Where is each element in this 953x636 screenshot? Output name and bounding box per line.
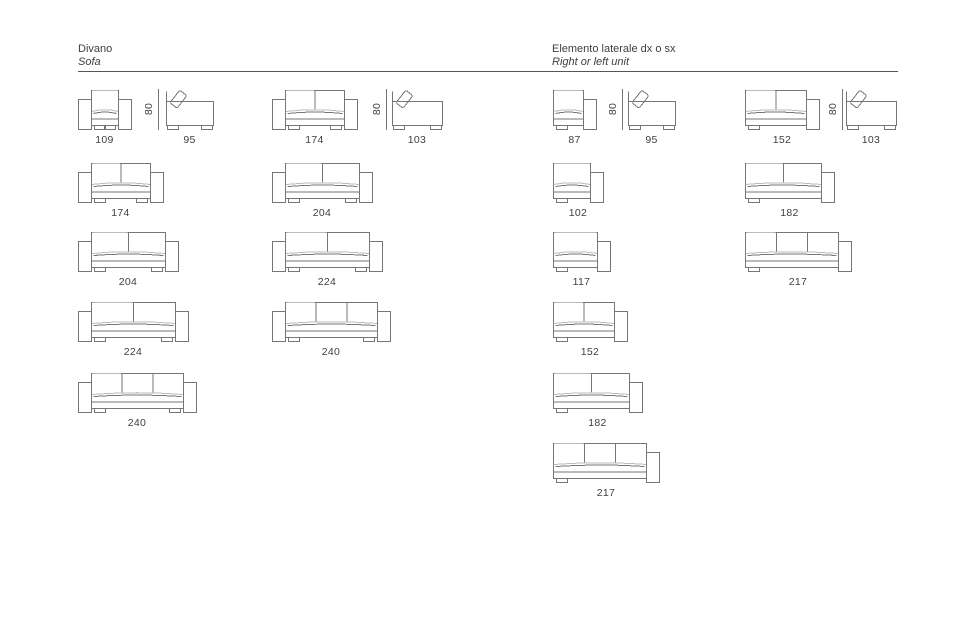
size-label: 240 <box>78 417 196 429</box>
sofa-front-view-240 <box>78 373 198 414</box>
section-subtitle: Right or left unit <box>552 56 676 69</box>
lateral-front-view-102 <box>553 163 605 204</box>
size-label: 152 <box>745 134 819 146</box>
section-subtitle: Sofa <box>78 56 112 69</box>
size-label: 102 <box>553 207 603 219</box>
lateral-front-view-217 <box>745 232 853 273</box>
header-rule <box>78 71 898 72</box>
section-header-sofa: Divano Sofa <box>78 43 112 69</box>
height-dim-label: 80 <box>827 96 839 122</box>
height-dim-label: 80 <box>607 96 619 122</box>
lateral-front-view-87 <box>553 90 598 131</box>
size-label: 117 <box>553 276 610 288</box>
size-label: 182 <box>745 207 834 219</box>
section-title: Divano <box>78 43 112 56</box>
lateral-front-view-152 <box>553 302 629 343</box>
size-label: 174 <box>78 207 163 219</box>
height-dim-line <box>622 89 623 130</box>
height-dim-line <box>386 89 387 130</box>
sofa-front-view-174 <box>272 90 359 131</box>
sofa-front-view-224 <box>78 302 190 343</box>
lateral-front-view-182 <box>745 163 836 204</box>
lateral-front-view-182 <box>553 373 644 414</box>
sofa-front-view-204 <box>272 163 374 204</box>
size-label: 224 <box>272 276 382 288</box>
height-dim-label: 80 <box>371 96 383 122</box>
size-label: 204 <box>78 276 178 288</box>
size-label: 109 <box>78 134 131 146</box>
size-label: 224 <box>78 346 188 358</box>
sofa-front-view-109 <box>78 90 133 131</box>
height-dim-line <box>842 89 843 130</box>
height-dim-label: 80 <box>143 96 155 122</box>
size-label: 217 <box>745 276 851 288</box>
size-label: 103 <box>392 134 442 146</box>
sofa-front-view-174 <box>78 163 165 204</box>
size-label: 204 <box>272 207 372 219</box>
sofa-front-view-240 <box>272 302 392 343</box>
size-label: 152 <box>553 346 627 358</box>
section-title: Elemento laterale dx o sx <box>552 43 676 56</box>
size-label: 174 <box>272 134 357 146</box>
lateral-front-view-117 <box>553 232 612 273</box>
size-label: 87 <box>553 134 596 146</box>
size-label: 103 <box>846 134 896 146</box>
size-label: 182 <box>553 417 642 429</box>
size-label: 217 <box>553 487 659 499</box>
sofa-front-view-204 <box>78 232 180 273</box>
size-label: 95 <box>166 134 213 146</box>
sofa-front-view-224 <box>272 232 384 273</box>
size-label: 240 <box>272 346 390 358</box>
lateral-front-view-217 <box>553 443 661 484</box>
lateral-side-view-95 <box>628 90 677 131</box>
height-dim-line <box>158 89 159 130</box>
size-label: 95 <box>628 134 675 146</box>
sofa-side-view-103 <box>392 90 444 131</box>
section-header-lateral-unit: Elemento laterale dx o sx Right or left … <box>552 43 676 69</box>
sofa-side-view-95 <box>166 90 215 131</box>
lateral-front-view-152 <box>745 90 821 131</box>
lateral-side-view-103 <box>846 90 898 131</box>
catalog-dimension-sheet: Divano Sofa Elemento laterale dx o sx Ri… <box>0 0 953 636</box>
